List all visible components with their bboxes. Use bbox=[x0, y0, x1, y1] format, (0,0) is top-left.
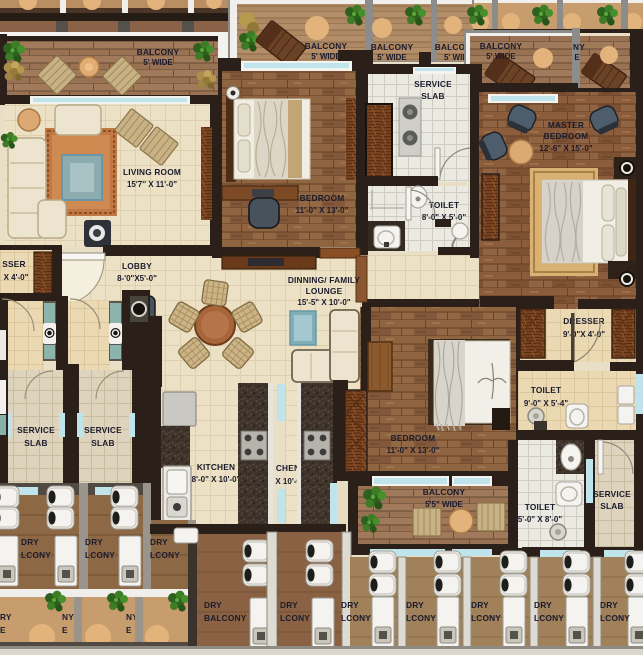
svg-text:LCONY: LCONY bbox=[406, 613, 436, 623]
svg-text:DRESSER: DRESSER bbox=[563, 316, 605, 326]
svg-text:LCONY: LCONY bbox=[150, 550, 180, 560]
svg-text:SERVICE: SERVICE bbox=[17, 425, 55, 435]
svg-text:TOILET: TOILET bbox=[531, 385, 562, 395]
svg-text:BALCONY: BALCONY bbox=[137, 47, 180, 57]
svg-text:5' WIDE: 5' WIDE bbox=[486, 52, 516, 61]
svg-text:BALCONY: BALCONY bbox=[423, 487, 466, 497]
svg-text:LCONY: LCONY bbox=[280, 613, 310, 623]
svg-text:9'-0" X 5'-4": 9'-0" X 5'-4" bbox=[524, 399, 569, 408]
svg-text:BEDROOM: BEDROOM bbox=[544, 131, 589, 141]
svg-text:12'-6" X 15'-0": 12'-6" X 15'-0" bbox=[539, 144, 592, 153]
svg-text:E: E bbox=[126, 625, 132, 635]
svg-text:DRY: DRY bbox=[280, 600, 298, 610]
svg-text:SERVICE: SERVICE bbox=[414, 79, 452, 89]
svg-text:DRY: DRY bbox=[600, 600, 618, 610]
svg-text:15'7'' X 11'-0": 15'7'' X 11'-0" bbox=[127, 180, 177, 189]
svg-text:X 4'-0": X 4'-0" bbox=[4, 273, 29, 282]
svg-text:DINNING/ FAMILY: DINNING/ FAMILY bbox=[288, 275, 361, 285]
svg-text:MASTER: MASTER bbox=[548, 120, 584, 130]
svg-text:5' WIDE: 5' WIDE bbox=[377, 53, 407, 62]
svg-text:CHEN: CHEN bbox=[276, 463, 300, 473]
svg-text:SERVICE: SERVICE bbox=[593, 489, 631, 499]
svg-text:E: E bbox=[62, 625, 68, 635]
svg-text:KITCHEN: KITCHEN bbox=[197, 462, 235, 472]
svg-text:E: E bbox=[0, 625, 6, 635]
svg-text:BEDROOM: BEDROOM bbox=[300, 193, 345, 203]
svg-text:15'-5" X 10'-0": 15'-5" X 10'-0" bbox=[297, 298, 350, 307]
svg-text:NY: NY bbox=[62, 612, 74, 622]
svg-text:DRY: DRY bbox=[534, 600, 552, 610]
svg-text:TOILET: TOILET bbox=[525, 502, 556, 512]
svg-text:LCONY: LCONY bbox=[85, 550, 115, 560]
svg-text:5'-0" X 8'-0": 5'-0" X 8'-0" bbox=[518, 515, 563, 524]
svg-text:LCONY: LCONY bbox=[21, 550, 51, 560]
svg-text:LCONY: LCONY bbox=[471, 613, 501, 623]
svg-text:11'-0" X 13'-0": 11'-0" X 13'-0" bbox=[296, 206, 349, 215]
svg-text:SLAB: SLAB bbox=[91, 438, 114, 448]
svg-text:LCONY: LCONY bbox=[341, 613, 371, 623]
svg-text:BALCONY: BALCONY bbox=[371, 42, 414, 52]
svg-text:BALCONY: BALCONY bbox=[204, 613, 247, 623]
svg-text:SERVICE: SERVICE bbox=[84, 425, 122, 435]
svg-text:BEDROOM: BEDROOM bbox=[391, 433, 436, 443]
svg-text:DRY: DRY bbox=[85, 537, 103, 547]
svg-text:DRY: DRY bbox=[21, 537, 39, 547]
svg-text:BALCONY: BALCONY bbox=[480, 41, 523, 51]
svg-text:BALCONY: BALCONY bbox=[305, 41, 348, 51]
svg-text:8'-0" X 10'-0": 8'-0" X 10'-0" bbox=[192, 475, 241, 484]
svg-text:LOUNGE: LOUNGE bbox=[306, 286, 343, 296]
svg-text:NY: NY bbox=[573, 42, 585, 52]
svg-text:E: E bbox=[574, 53, 580, 62]
svg-text:DRY: DRY bbox=[341, 600, 359, 610]
svg-text:5' WIDE: 5' WIDE bbox=[311, 52, 341, 61]
svg-text:LIVING ROOM: LIVING ROOM bbox=[123, 167, 181, 177]
svg-text:DRY: DRY bbox=[471, 600, 489, 610]
svg-text:RY: RY bbox=[0, 612, 12, 622]
svg-text:LCONY: LCONY bbox=[534, 613, 564, 623]
svg-text:DRY: DRY bbox=[204, 600, 222, 610]
svg-text:LOBBY: LOBBY bbox=[122, 261, 152, 271]
svg-text:DRY: DRY bbox=[406, 600, 424, 610]
svg-text:SLAB: SLAB bbox=[600, 501, 623, 511]
svg-text:8-'0"X5'-0": 8-'0"X5'-0" bbox=[117, 274, 157, 283]
svg-text:SSER: SSER bbox=[2, 259, 25, 269]
svg-text:SLAB: SLAB bbox=[24, 438, 47, 448]
svg-text:SLAB: SLAB bbox=[421, 91, 444, 101]
svg-text:11'-0" X 13'-0": 11'-0" X 13'-0" bbox=[387, 446, 440, 455]
svg-text:LCONY: LCONY bbox=[600, 613, 630, 623]
svg-text:DRY: DRY bbox=[150, 537, 168, 547]
svg-text:5' WIDE: 5' WIDE bbox=[143, 58, 173, 67]
